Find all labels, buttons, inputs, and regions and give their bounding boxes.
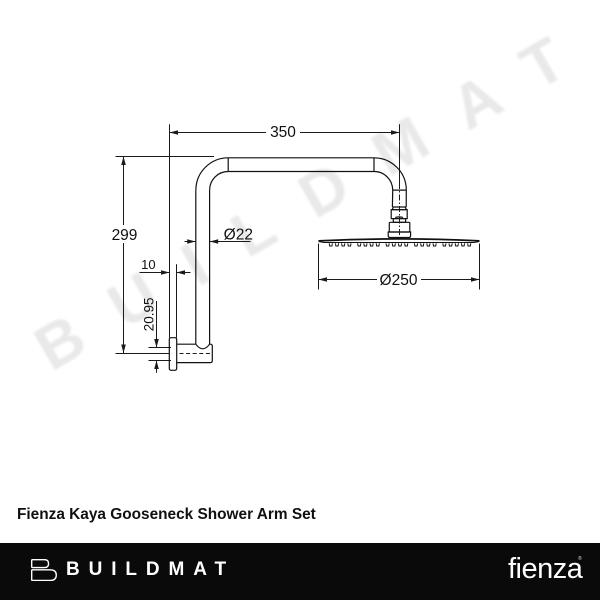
- svg-text:20.95: 20.95: [142, 298, 157, 332]
- svg-text:10: 10: [141, 257, 155, 272]
- svg-text:Ø22: Ø22: [224, 227, 253, 244]
- svg-text:350: 350: [270, 124, 296, 141]
- svg-text:299: 299: [112, 227, 138, 244]
- svg-text:Ø250: Ø250: [380, 272, 418, 289]
